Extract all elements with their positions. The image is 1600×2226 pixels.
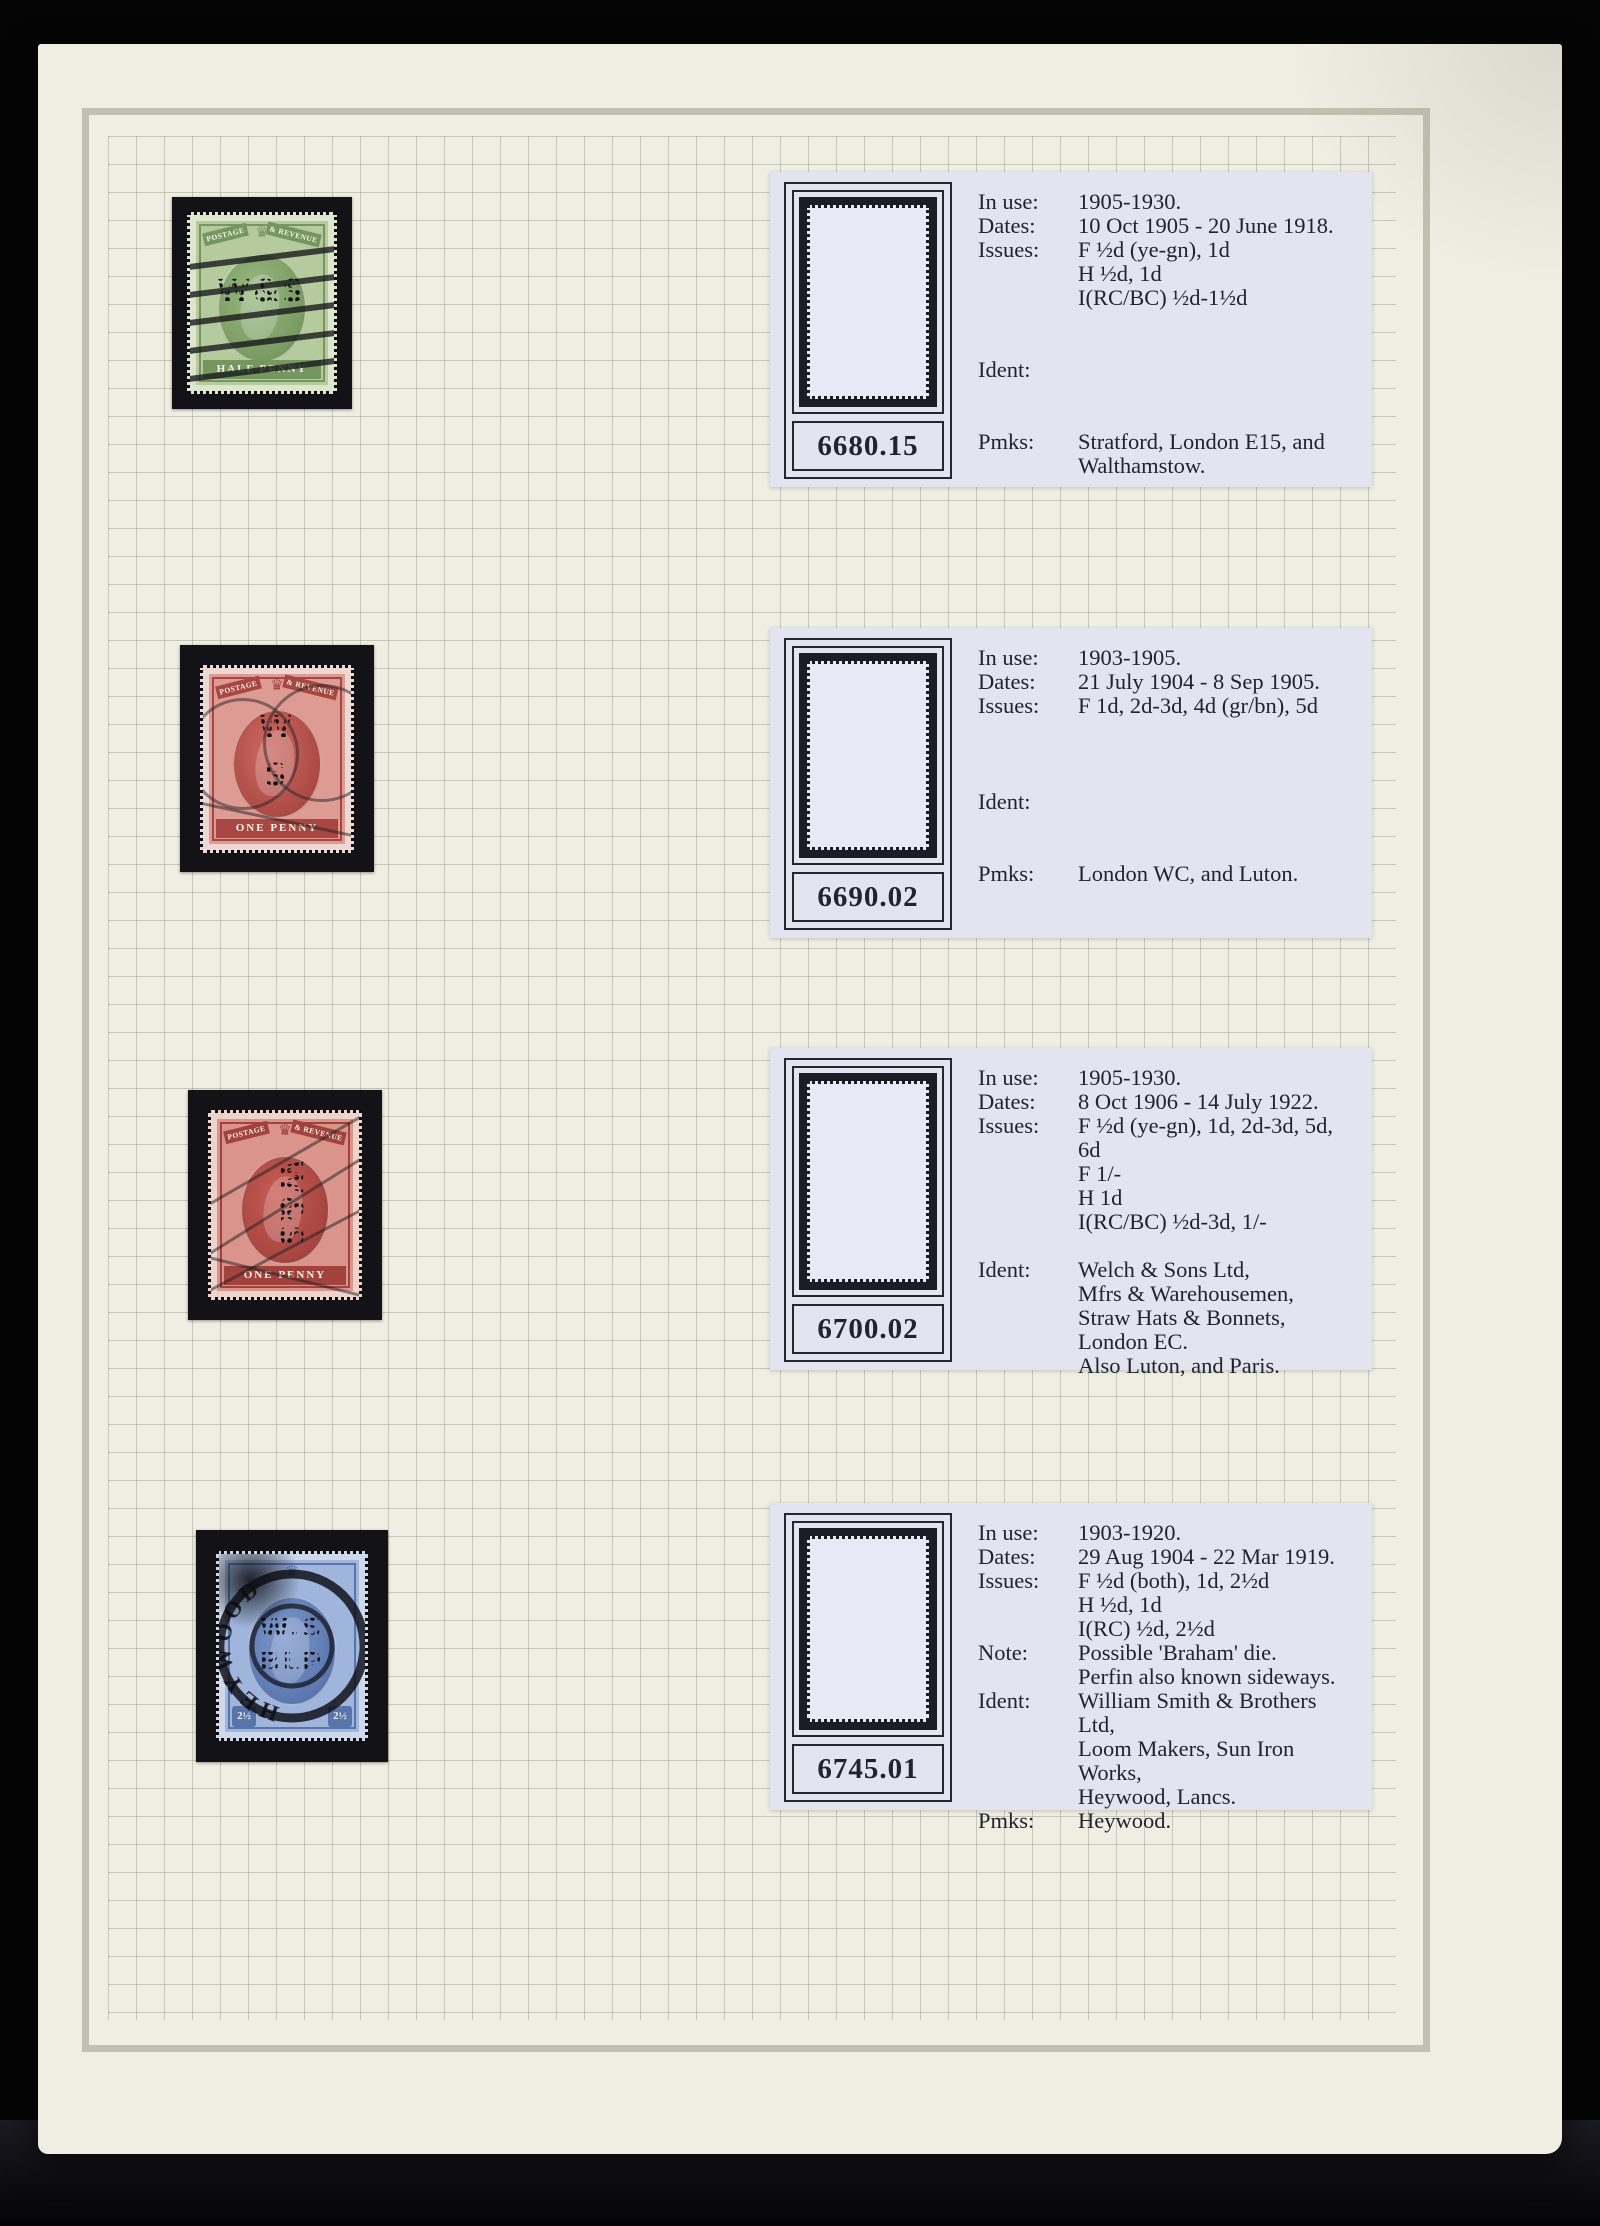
card-field-row: H ½d, 1d [978, 262, 1354, 286]
card-field-row: In use:1905-1930. [978, 190, 1354, 214]
perfin-stamp-drawing: W.SBLP [792, 1521, 944, 1737]
card-field-row: London EC. [978, 1330, 1354, 1354]
card-fields: In use:1903-1905.Dates:21 July 1904 - 8 … [978, 638, 1354, 930]
card-field-row [978, 382, 1354, 406]
field-value: Walthamstow. [1078, 454, 1354, 478]
card-field-row: Pmks:Stratford, London E15, and [978, 430, 1354, 454]
field-value [1078, 838, 1354, 862]
field-value: Stratford, London E15, and [1078, 430, 1354, 454]
field-value: Perfin also known sideways. [1078, 1665, 1354, 1689]
perfin-letters: W.SBLP [807, 1536, 929, 1722]
perfin-letter-lines: WS [849, 716, 886, 796]
catalogue-number: 6700.02 [792, 1304, 944, 1354]
card-field-row: Pmks:London WC, and Luton. [978, 862, 1354, 886]
stamp-one-penny-red-2: POSTAGE ♛ & REVENUE ONE PENNY W&S [208, 1110, 362, 1300]
postmark-heywood: HEYWOOD [216, 1560, 368, 1732]
card-field-row: In use:1903-1920. [978, 1521, 1354, 1545]
field-label [978, 766, 1078, 790]
card-field-row: F 1/- [978, 1162, 1354, 1186]
perfin-illustration: W&S 6700.02 [784, 1058, 952, 1362]
field-label: Ident: [978, 1689, 1078, 1737]
card-field-row [978, 742, 1354, 766]
field-value [1078, 1234, 1354, 1258]
perfin-line: S [849, 756, 886, 796]
field-label [978, 406, 1078, 430]
catalogue-number: 6680.15 [792, 421, 944, 471]
field-value: Heywood, Lancs. [1078, 1785, 1354, 1809]
perfin-letter-lines: W.SBLP [830, 1589, 905, 1669]
field-value: F 1/- [1078, 1162, 1354, 1186]
stamp-mount: ♛ 2½ 2½ W.S BLP HEYWOOD [196, 1530, 388, 1762]
card-field-row: Issues:F ½d (both), 1d, 2½d [978, 1569, 1354, 1593]
field-label: Pmks: [978, 862, 1078, 886]
perfin-illustration: WS 6690.02 [784, 638, 952, 930]
card-field-row [978, 406, 1354, 430]
field-label [978, 1306, 1078, 1330]
field-label [978, 1785, 1078, 1809]
perfin-line: W&S [847, 1128, 889, 1234]
field-label [978, 1210, 1078, 1234]
perfin-line: W&S [815, 281, 921, 323]
card-field-row: I(RC) ½d, 2½d [978, 1617, 1354, 1641]
field-value [1078, 406, 1354, 430]
perfin-stamp-drawing: W&S [792, 1066, 944, 1297]
field-value: 1905-1930. [1078, 190, 1354, 214]
card-field-row: Perfin also known sideways. [978, 1665, 1354, 1689]
field-label [978, 454, 1078, 478]
catalogue-number: 6690.02 [792, 872, 944, 922]
card-field-row [978, 310, 1354, 334]
field-value: 29 Aug 1904 - 22 Mar 1919. [1078, 1545, 1354, 1569]
field-value: F 1d, 2d-3d, 4d (gr/bn), 5d [1078, 694, 1354, 718]
stamp-drawing-black-field: W.SBLP [799, 1528, 937, 1730]
stamp-mount: POSTAGE ♛ & REVENUE ONE PENNY W S [180, 645, 374, 872]
field-value: H 1d [1078, 1186, 1354, 1210]
field-value: I(RC/BC) ½d-1½d [1078, 286, 1354, 310]
card-fields: In use:1905-1930.Dates:8 Oct 1906 - 14 J… [978, 1058, 1354, 1362]
field-label: In use: [978, 190, 1078, 214]
svg-text:HEYWOOD: HEYWOOD [216, 1574, 282, 1726]
perfin-letters: W&S [807, 1081, 929, 1282]
field-label: Note: [978, 1641, 1078, 1665]
field-label: Ident: [978, 358, 1078, 382]
stamp-drawing-black-field: W&S [799, 1073, 937, 1290]
field-label [978, 262, 1078, 286]
card-field-row: Ident:William Smith & Brothers Ltd, [978, 1689, 1354, 1737]
field-label [978, 334, 1078, 358]
field-value [1078, 382, 1354, 406]
field-label: Pmks: [978, 1809, 1078, 1833]
field-value: 21 July 1904 - 8 Sep 1905. [1078, 670, 1354, 694]
field-label [978, 718, 1078, 742]
field-label [978, 1282, 1078, 1306]
perfin-stamp-drawing: WS [792, 646, 944, 865]
field-label: Ident: [978, 1258, 1078, 1282]
field-label [978, 1330, 1078, 1354]
field-label [978, 838, 1078, 862]
field-value [1078, 718, 1354, 742]
card-field-row: Also Luton, and Paris. [978, 1354, 1354, 1378]
field-value: F ½d (ye-gn), 1d, 2d-3d, 5d, 6d [1078, 1114, 1354, 1162]
card-field-row: Pmks:Heywood. [978, 1809, 1354, 1833]
field-label: Issues: [978, 1569, 1078, 1593]
card-field-row: Ident: [978, 790, 1354, 814]
stamp-drawing-black-field: W&S [799, 197, 937, 407]
card-field-row [978, 814, 1354, 838]
field-label [978, 1665, 1078, 1689]
card-field-row: Ident: [978, 358, 1354, 382]
field-label [978, 382, 1078, 406]
field-label [978, 1737, 1078, 1785]
field-label: Issues: [978, 238, 1078, 262]
card-field-row: Note:Possible 'Braham' die. [978, 1641, 1354, 1665]
field-label: In use: [978, 646, 1078, 670]
card-field-row [978, 334, 1354, 358]
field-value [1078, 742, 1354, 766]
perfin-line: W.S [830, 1589, 905, 1629]
card-field-row: Loom Makers, Sun Iron Works, [978, 1737, 1354, 1785]
perfin-illustration: W.SBLP 6745.01 [784, 1513, 952, 1802]
perfin-letter-lines: W&S [847, 1128, 889, 1234]
field-value: Straw Hats & Bonnets, [1078, 1306, 1354, 1330]
card-field-row: Issues:F ½d (ye-gn), 1d, 2d-3d, 5d, 6d [978, 1114, 1354, 1162]
stamp-mount: POSTAGE ♛ & REVENUE HALF PENNY W&S [172, 197, 352, 409]
field-value: Welch & Sons Ltd, [1078, 1258, 1354, 1282]
field-value: I(RC) ½d, 2½d [1078, 1617, 1354, 1641]
card-field-row: Issues:F ½d (ye-gn), 1d [978, 238, 1354, 262]
field-label: In use: [978, 1066, 1078, 1090]
field-value [1078, 334, 1354, 358]
card-field-row: Straw Hats & Bonnets, [978, 1306, 1354, 1330]
field-label [978, 1186, 1078, 1210]
card-field-row: Ident:Welch & Sons Ltd, [978, 1258, 1354, 1282]
stamp-one-penny-red-1: POSTAGE ♛ & REVENUE ONE PENNY W S [200, 665, 354, 853]
card-field-row [978, 766, 1354, 790]
perfin-card-6700-02: W&S 6700.02 In use:1905-1930.Dates:8 Oct… [770, 1048, 1372, 1370]
card-field-row: In use:1903-1905. [978, 646, 1354, 670]
card-fields: In use:1905-1930.Dates:10 Oct 1905 - 20 … [978, 182, 1354, 479]
field-value: Also Luton, and Paris. [1078, 1354, 1354, 1378]
perfin-letter-lines: W&S [815, 281, 921, 323]
field-value: 1903-1905. [1078, 646, 1354, 670]
field-label [978, 286, 1078, 310]
field-label: Pmks: [978, 430, 1078, 454]
card-field-row: Issues:F 1d, 2d-3d, 4d (gr/bn), 5d [978, 694, 1354, 718]
card-field-row: Dates:29 Aug 1904 - 22 Mar 1919. [978, 1545, 1354, 1569]
perfin-letters: W&S [807, 205, 929, 399]
card-field-row: I(RC/BC) ½d-1½d [978, 286, 1354, 310]
field-value: Mfrs & Warehousemen, [1078, 1282, 1354, 1306]
field-value [1078, 766, 1354, 790]
field-value: London WC, and Luton. [1078, 862, 1354, 886]
card-field-row: Dates:8 Oct 1906 - 14 July 1922. [978, 1090, 1354, 1114]
card-field-row: H ½d, 1d [978, 1593, 1354, 1617]
field-label [978, 310, 1078, 334]
stamp-half-penny-green: POSTAGE ♛ & REVENUE HALF PENNY W&S [187, 212, 337, 394]
perfin-letters: WS [807, 661, 929, 850]
perfin-illustration: W&S 6680.15 [784, 182, 952, 479]
field-value [1078, 790, 1354, 814]
field-value: 1903-1920. [1078, 1521, 1354, 1545]
field-value: Possible 'Braham' die. [1078, 1641, 1354, 1665]
field-value [1078, 358, 1354, 382]
field-label [978, 1617, 1078, 1641]
field-value: William Smith & Brothers Ltd, [1078, 1689, 1354, 1737]
card-field-row [978, 1234, 1354, 1258]
field-label: Dates: [978, 1545, 1078, 1569]
field-label: In use: [978, 1521, 1078, 1545]
field-value: H ½d, 1d [1078, 262, 1354, 286]
field-label [978, 742, 1078, 766]
card-fields: In use:1903-1920.Dates:29 Aug 1904 - 22 … [978, 1513, 1354, 1802]
card-field-row: Heywood, Lancs. [978, 1785, 1354, 1809]
card-field-row [978, 838, 1354, 862]
card-field-row: Mfrs & Warehousemen, [978, 1282, 1354, 1306]
field-value: Heywood. [1078, 1809, 1354, 1833]
field-value [1078, 814, 1354, 838]
field-value: 10 Oct 1905 - 20 June 1918. [1078, 214, 1354, 238]
perfin-line: W [849, 716, 886, 756]
field-value: F ½d (both), 1d, 2½d [1078, 1569, 1354, 1593]
field-label: Issues: [978, 1114, 1078, 1162]
stamp-two-half-pence-blue: ♛ 2½ 2½ W.S BLP HEYWOOD [216, 1551, 368, 1741]
field-value: London EC. [1078, 1330, 1354, 1354]
field-label [978, 1593, 1078, 1617]
field-label [978, 1234, 1078, 1258]
perfin-card-6690-02: WS 6690.02 In use:1903-1905.Dates:21 Jul… [770, 628, 1372, 938]
field-label [978, 1162, 1078, 1186]
field-value [1078, 310, 1354, 334]
card-field-row: Dates:10 Oct 1905 - 20 June 1918. [978, 214, 1354, 238]
field-value: I(RC/BC) ½d-3d, 1/- [1078, 1210, 1354, 1234]
card-field-row: Dates:21 July 1904 - 8 Sep 1905. [978, 670, 1354, 694]
card-field-row: Walthamstow. [978, 454, 1354, 478]
field-label: Dates: [978, 1090, 1078, 1114]
field-label [978, 814, 1078, 838]
perfin-card-6745-01: W.SBLP 6745.01 In use:1903-1920.Dates:29… [770, 1503, 1372, 1810]
field-label: Dates: [978, 670, 1078, 694]
field-value: 8 Oct 1906 - 14 July 1922. [1078, 1090, 1354, 1114]
field-value: Loom Makers, Sun Iron Works, [1078, 1737, 1354, 1785]
field-label [978, 1354, 1078, 1378]
card-field-row: H 1d [978, 1186, 1354, 1210]
catalogue-number: 6745.01 [792, 1744, 944, 1794]
field-label: Issues: [978, 694, 1078, 718]
card-field-row [978, 718, 1354, 742]
field-value: 1905-1930. [1078, 1066, 1354, 1090]
field-value: H ½d, 1d [1078, 1593, 1354, 1617]
perfin-card-6680-15: W&S 6680.15 In use:1905-1930.Dates:10 Oc… [770, 172, 1372, 487]
field-value: F ½d (ye-gn), 1d [1078, 238, 1354, 262]
card-field-row: I(RC/BC) ½d-3d, 1/- [978, 1210, 1354, 1234]
card-field-row: In use:1905-1930. [978, 1066, 1354, 1090]
field-label: Dates: [978, 214, 1078, 238]
field-label: Ident: [978, 790, 1078, 814]
perfin-line: BLP [830, 1629, 905, 1669]
album-page: POSTAGE ♛ & REVENUE HALF PENNY W&S POSTA… [38, 44, 1562, 2154]
stamp-drawing-black-field: WS [799, 653, 937, 858]
stamp-mount: POSTAGE ♛ & REVENUE ONE PENNY W&S [188, 1090, 382, 1320]
perfin-stamp-drawing: W&S [792, 190, 944, 414]
